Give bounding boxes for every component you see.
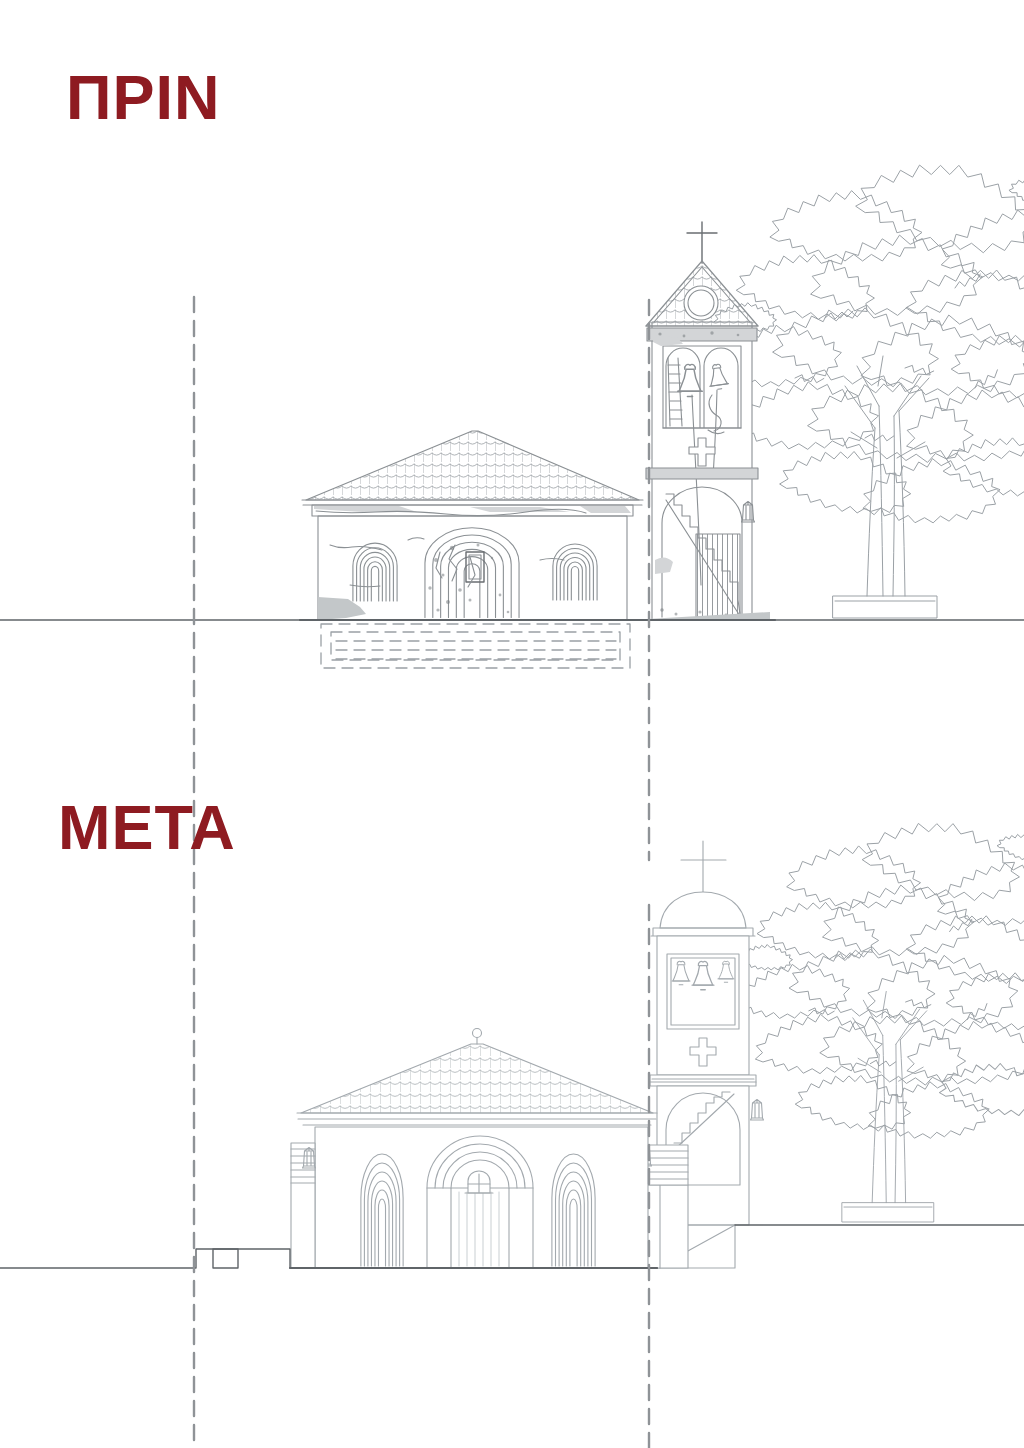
after-tower-cross-icon	[681, 841, 726, 894]
oculus-window	[684, 286, 718, 320]
after-church-roof	[301, 1044, 653, 1113]
left-pilaster	[291, 1143, 316, 1268]
before-foundation-outline	[321, 624, 630, 668]
after-drawing	[0, 812, 1024, 1268]
before-tree	[707, 152, 1024, 618]
after-tree	[731, 812, 1024, 1222]
before-section-title: ΠΡΙΝ	[66, 66, 221, 129]
tower-dome	[660, 892, 746, 928]
before-tower-cross-icon	[687, 222, 717, 263]
before-church	[302, 431, 643, 620]
tower-gate	[696, 534, 740, 617]
after-church	[291, 1029, 657, 1269]
before-bell-tower	[630, 222, 770, 620]
before-church-roof	[306, 431, 639, 500]
before-drawing	[0, 152, 1024, 668]
wall-lantern	[751, 1100, 764, 1121]
after-section-title: ΜΕΤΑ	[58, 796, 236, 859]
elevation-drawings	[0, 0, 1024, 1448]
elevation-comparison-page: ΠΡΙΝ ΜΕΤΑ	[0, 0, 1024, 1448]
